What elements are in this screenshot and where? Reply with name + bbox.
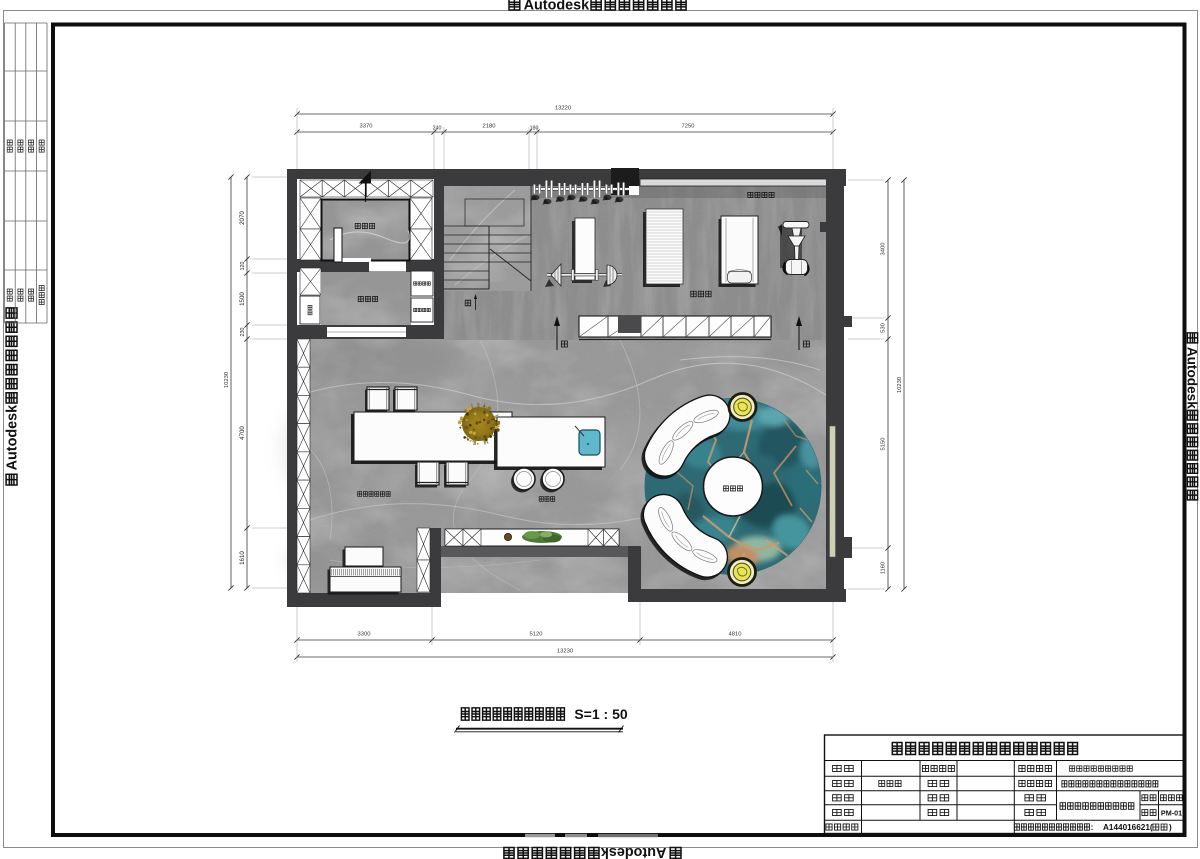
svg-text:1500: 1500 [239,292,246,306]
svg-text:7250: 7250 [682,124,695,130]
svg-text:A144016621(: A144016621( [1103,823,1153,832]
svg-text:Autodesk: Autodesk [1185,347,1200,409]
svg-text:Autodesk: Autodesk [524,0,591,14]
svg-text:2070: 2070 [239,211,246,225]
svg-text:3370: 3370 [360,124,373,130]
svg-text:3300: 3300 [358,632,371,638]
svg-text:4810: 4810 [729,632,742,638]
svg-text:): ) [1169,823,1172,832]
svg-text:PM-01: PM-01 [1161,808,1182,817]
svg-text:13220: 13220 [555,106,571,112]
svg-text:2180: 2180 [483,124,496,130]
svg-text:10230: 10230 [224,372,230,388]
svg-text:5120: 5120 [530,632,543,638]
svg-text:230: 230 [240,328,246,337]
svg-text::: : [1091,823,1094,832]
svg-text:3400: 3400 [881,243,887,256]
svg-text:Autodesk: Autodesk [5,404,21,471]
svg-text:10230: 10230 [897,377,903,393]
svg-text:13230: 13230 [557,649,573,655]
svg-text:Autodesk: Autodesk [600,844,667,859]
svg-text:S=1 : 50: S=1 : 50 [574,706,628,722]
svg-text:1160: 1160 [881,562,887,574]
svg-text:5150: 5150 [881,438,887,451]
svg-text:4700: 4700 [239,426,246,440]
svg-text:120: 120 [240,262,246,271]
svg-text:530: 530 [881,323,887,333]
svg-text:1610: 1610 [239,551,246,565]
